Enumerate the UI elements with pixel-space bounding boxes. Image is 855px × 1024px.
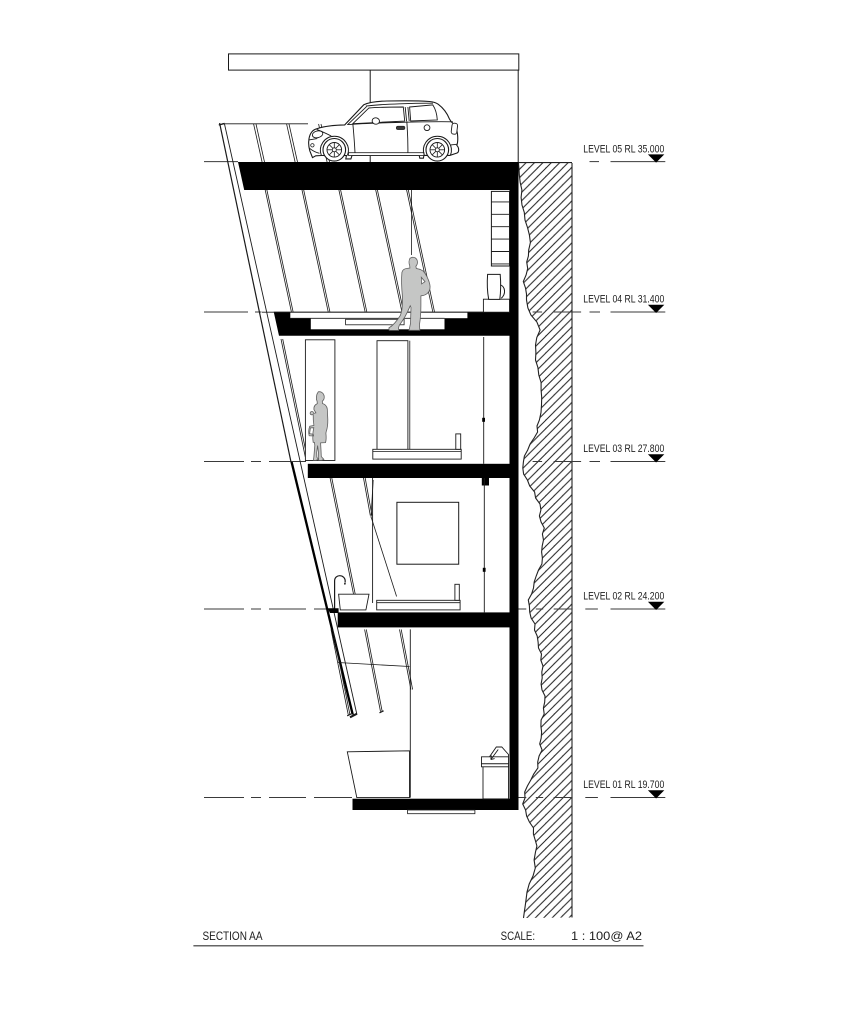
svg-text:LEVEL 04 RL 31.400: LEVEL 04 RL 31.400: [583, 294, 664, 306]
svg-text:LEVEL 03 RL 27.800: LEVEL 03 RL 27.800: [583, 443, 664, 455]
svg-text:SCALE:: SCALE:: [501, 929, 535, 943]
svg-text:LEVEL 05 RL 35.000: LEVEL 05 RL 35.000: [583, 143, 664, 155]
svg-text:1 : 100@ A2: 1 : 100@ A2: [571, 929, 642, 943]
svg-text:LEVEL 01 RL 19.700: LEVEL 01 RL 19.700: [583, 779, 664, 791]
svg-text:LEVEL 02 RL 24.200: LEVEL 02 RL 24.200: [583, 591, 664, 603]
svg-text:SECTION AA: SECTION AA: [203, 929, 263, 943]
